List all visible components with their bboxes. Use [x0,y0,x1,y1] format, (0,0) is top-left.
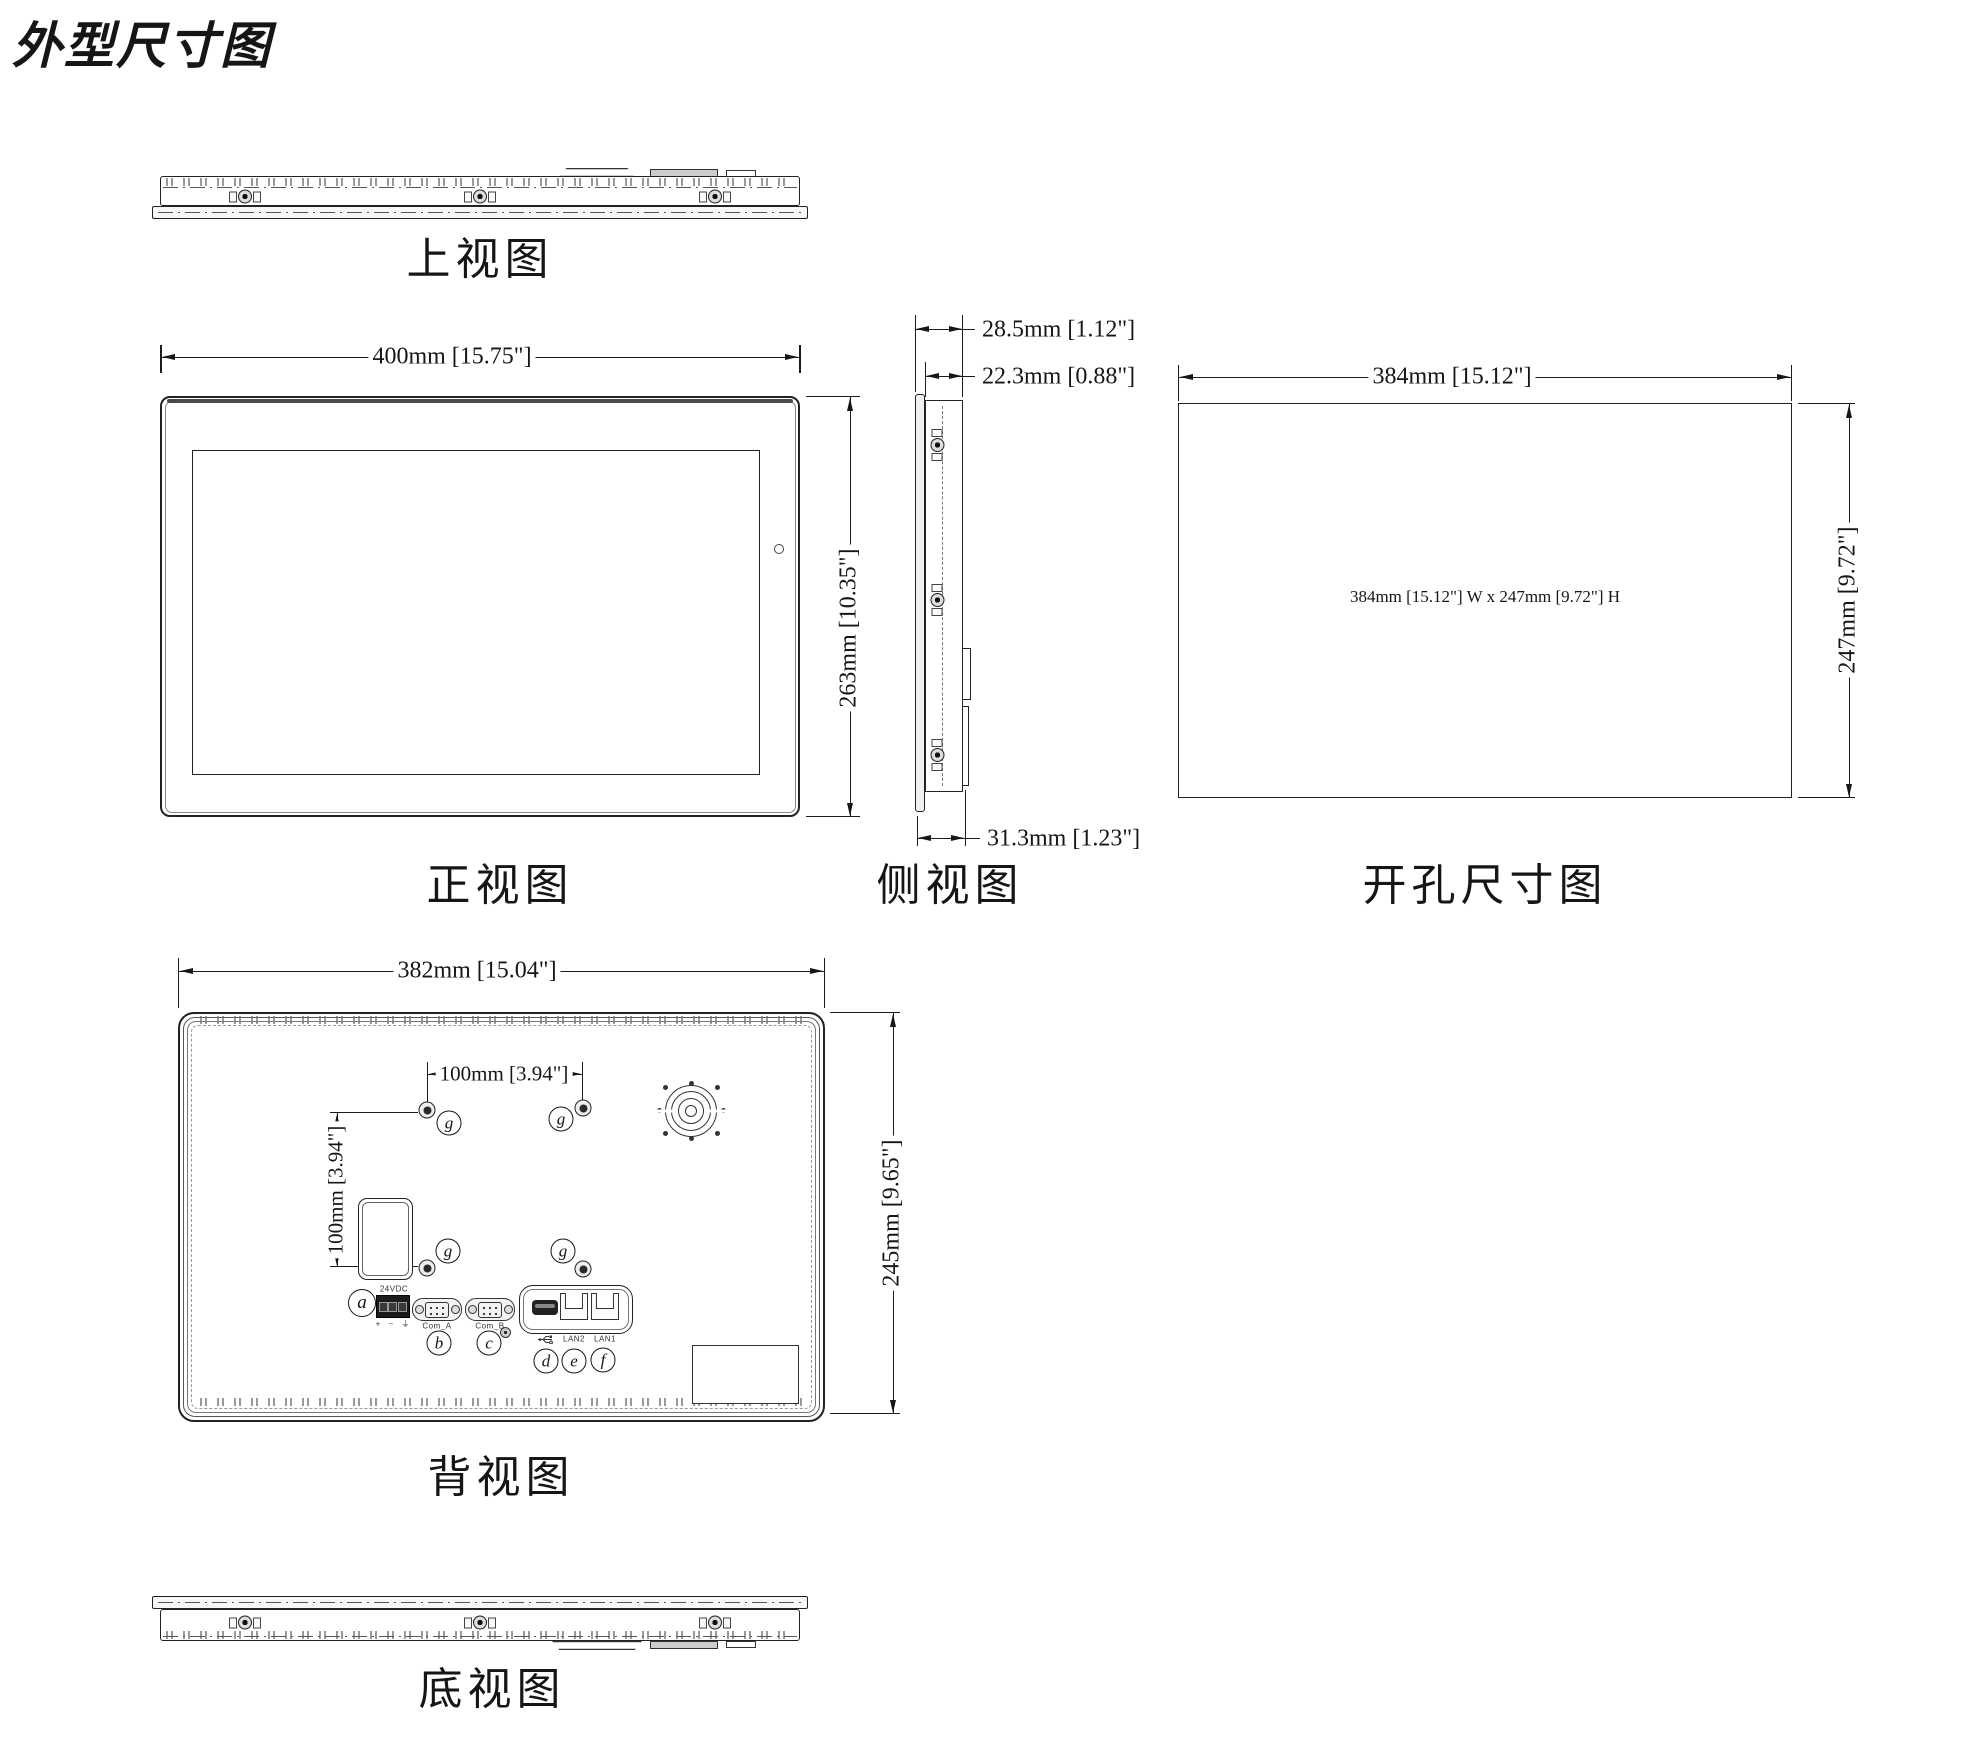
extension-line [917,816,918,846]
arrowhead-left [918,835,931,841]
page-title: 外型尺寸图 [12,6,272,78]
dim-rear-width: 382mm [15.04"] [393,958,560,985]
lan1-port [591,1293,619,1320]
callout-d: d [534,1349,559,1374]
front-view-screen [192,450,760,775]
dimension-drawing-page: 外型尺寸图 上视图 400mm [15.75"] 正视图 [0,0,1968,1748]
arrowhead-right [949,373,962,379]
arrowhead-left [162,354,175,360]
dim-tick [427,1062,428,1102]
vesa-hole [575,1100,592,1117]
extension-line [806,816,860,817]
arrowhead-left [1180,374,1193,380]
lan1-label: LAN1 [594,1335,616,1344]
screw-detail [500,1327,511,1338]
dim-front-width: 400mm [15.75"] [368,344,535,371]
leader-line [966,838,980,839]
rear-vent-top [200,1016,802,1024]
screw-detail [464,1616,496,1629]
lan2-label: LAN2 [563,1335,585,1344]
battery-compartment [358,1198,413,1280]
callout-g: g [436,1239,461,1264]
dim-tick [582,1062,583,1100]
dim-tick [1791,365,1792,401]
extension-line [1798,403,1855,404]
lan2-port [560,1293,588,1320]
name-plate [692,1345,799,1404]
arrowhead-up [847,398,853,411]
bottom-view-bump [552,1641,642,1650]
arrowhead-left [916,326,929,332]
dim-vesa-vertical: 100mm [3.94"] [324,1122,349,1259]
screw-detail [932,739,945,771]
extension-line [830,1413,900,1414]
top-view-centerline [163,187,797,188]
dim-side-depth-body: 22.3mm [0.88"] [978,364,1139,391]
com-a-label: Com_A [422,1322,451,1331]
side-view-connector-bump [962,648,971,700]
screw-detail [699,1616,731,1629]
front-led-indicator [774,544,784,554]
rear-view-label: 背视图 [428,1441,575,1505]
top-view-glass-dash [158,212,802,213]
extension-line [925,362,926,397]
bottom-view-vent-pattern [166,1631,794,1639]
callout-g: g [437,1111,462,1136]
arrowhead-down [890,1400,896,1413]
arrowhead-left [926,373,939,379]
callout-e: e [562,1349,587,1374]
power-terminal-block [376,1295,410,1318]
arrowhead-right [810,968,823,974]
power-pin-marks: + − ⏚ [376,1319,413,1330]
usb-icon [538,1335,554,1344]
arrowhead-left [180,968,193,974]
callout-g: g [551,1239,576,1264]
arrowhead-right [1777,374,1790,380]
dim-rear-height: 245mm [9.65"] [879,1135,906,1290]
side-view-connector-bump [962,706,969,786]
callout-a: a [348,1289,376,1317]
arrowhead-up [1846,405,1852,418]
extension-line [330,1112,418,1113]
dim-side-depth-total: 28.5mm [1.12"] [978,317,1139,344]
front-view-label: 正视图 [427,849,574,913]
dim-tick [178,958,179,1008]
extension-line [830,1012,900,1013]
extension-line [1798,797,1855,798]
bottom-view-bump [726,1641,756,1648]
dim-tick [1178,365,1179,401]
screw-detail [932,584,945,616]
bottom-view-bump [650,1641,718,1649]
top-view-vent-pattern [166,178,794,186]
screw-detail [699,190,731,203]
bottom-view-label: 底视图 [419,1653,566,1717]
arrowhead-right [949,326,962,332]
dim-cutout-height: 247mm [9.72"] [1835,522,1862,677]
power-port-label: 24VDC [380,1285,408,1294]
screw-detail [932,429,945,461]
arrowhead-right [951,835,964,841]
dim-cutout-width: 384mm [15.12"] [1368,364,1535,391]
cutout-note: 384mm [15.12"] W x 247mm [9.72"] H [1346,587,1624,607]
callout-b: b [427,1331,452,1356]
callout-f: f [591,1348,616,1373]
screw-detail [464,190,496,203]
dim-vesa-horizontal: 100mm [3.94"] [436,1062,573,1087]
arrowhead-up [890,1014,896,1027]
vesa-hole [419,1102,436,1119]
dim-tick [824,958,825,1008]
vesa-hole [419,1260,436,1277]
front-view-glass-edge [167,399,793,403]
top-view-label: 上视图 [407,223,554,287]
bottom-view-centerline [163,1636,797,1637]
speaker-grille [651,1081,731,1141]
extension-line [962,315,963,397]
dim-tick [799,345,801,373]
arrowhead-down [847,803,853,816]
extension-line [806,396,860,397]
com-b-port [465,1298,515,1321]
side-view-label: 侧视图 [877,849,1024,913]
bottom-view-glass-dash [158,1602,802,1603]
dim-side-depth-connector: 31.3mm [1.23"] [983,826,1144,853]
vesa-hole [575,1261,592,1278]
arrowhead-right [785,354,798,360]
com-a-port [412,1298,462,1321]
arrowhead-down [1846,784,1852,797]
screw-detail [229,190,261,203]
side-view-glass [915,394,925,812]
leader-line [963,376,975,377]
callout-g: g [549,1107,574,1132]
dim-front-height: 263mm [10.35"] [836,544,863,711]
leader-line [963,329,975,330]
usb-port [532,1300,558,1315]
cutout-view-label: 开孔尺寸图 [1363,849,1608,913]
callout-c: c [477,1331,502,1356]
screw-detail [229,1616,261,1629]
battery-compartment-inner [362,1202,409,1276]
